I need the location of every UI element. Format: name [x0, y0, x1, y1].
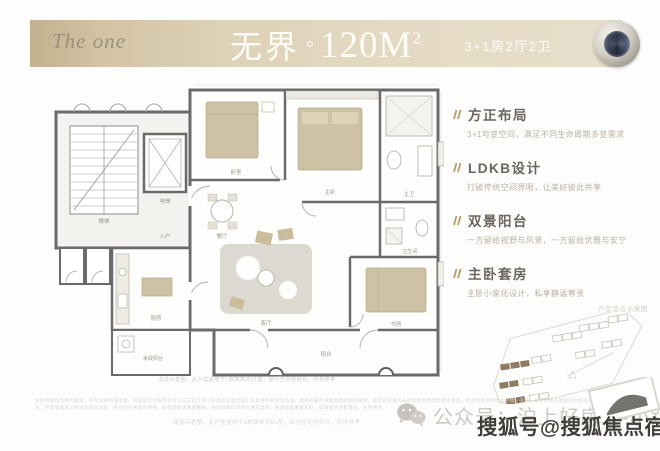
plan-note: 改造示意图，此户型适用于1栋西单元01室，部分空间经转化，仅供参考	[50, 376, 444, 383]
feature-title: LDKB设计	[468, 157, 542, 177]
room-label-laundry: 家政阳台	[143, 355, 163, 362]
title-cn: 无界	[230, 29, 300, 65]
room-label-bedroom: 卧室	[230, 168, 242, 176]
entry-door-gap	[189, 186, 192, 206]
title-area-number: 120M	[320, 25, 412, 66]
header-band: The one 无界120M2 3+1房2厅2卫	[30, 20, 622, 67]
feature-desc: 一方留给视野与风景，一方留给优雅与安宁	[467, 235, 654, 246]
room-label-kitchen: 厨房	[150, 314, 162, 322]
knot-seal-center	[604, 31, 630, 57]
feature-list: 方正布局 3+1可变空间，满足不同生命周期多变需求 LDKB设计 打破传统空间界…	[452, 104, 654, 299]
floorplan-drawing: 楼梯 电梯 入户 厨房 家政阳台	[50, 82, 444, 380]
room-laundry-balcony: 家政阳台	[112, 330, 190, 375]
feature-title: 主卧套房	[468, 263, 528, 283]
flyer-page: The one 无界120M2 3+1房2厅2卫 楼梯 电梯 入户	[0, 0, 660, 451]
feature-title: 方正布局	[468, 104, 528, 124]
feature-item: 方正布局 3+1可变空间，满足不同生命周期多变需求	[452, 104, 654, 140]
room-label-balcony: 阳台	[320, 350, 332, 358]
quote-marker-icon	[452, 162, 462, 173]
feature-desc: 主卧小家化设计，私享静谧尊贵	[467, 288, 654, 299]
room-label-study: 书房	[390, 320, 402, 328]
room-label-living: 客厅	[260, 319, 272, 327]
feature-head: 双景阳台	[452, 210, 654, 230]
room-label-master: 主卧	[324, 188, 336, 196]
room-kitchen: 厨房	[112, 248, 190, 330]
feature-head: 方正布局	[452, 104, 654, 124]
room-label-stairs: 楼梯	[98, 217, 110, 225]
room-label-entry: 入户	[159, 232, 170, 240]
quote-marker-icon	[452, 109, 462, 120]
feature-item: LDKB设计 打破传统空间界限，让美好彼此共享	[452, 157, 654, 193]
unit-spec: 3+1房2厅2卫	[464, 36, 552, 55]
quote-marker-icon	[452, 215, 462, 226]
footer-note: 改造示意图，此户型适用于1栋西单元01室，部分空间经转化，仅供参考	[173, 418, 360, 426]
feature-item: 双景阳台 一方留给视野与风景，一方留给优雅与安宁	[452, 210, 654, 246]
feature-head: 主卧套房	[452, 263, 654, 283]
feature-item: 主卧套房 主卧小家化设计，私享静谧尊贵	[452, 263, 654, 299]
knot-seal-icon	[594, 21, 640, 67]
wechat-icon	[396, 402, 426, 429]
room-label-dining: 餐厅	[216, 232, 228, 240]
room-label-elevator: 电梯	[159, 197, 171, 205]
feature-desc: 3+1可变空间，满足不同生命周期多变需求	[467, 129, 654, 140]
feature-head: LDKB设计	[452, 157, 654, 177]
kitchen-door-gap	[189, 282, 192, 300]
feature-desc: 打破传统空间界限，让美好彼此共享	[467, 182, 654, 193]
feature-title: 双景阳台	[468, 210, 528, 230]
room-label-bath: 卫生间	[402, 248, 417, 255]
room-label-master-bath: 主卫	[403, 190, 415, 198]
title-area: 120M2	[320, 25, 422, 66]
title-area-sup: 2	[412, 28, 422, 47]
title-dot-icon	[307, 41, 313, 47]
quote-marker-icon	[452, 268, 462, 279]
watermark-text: 搜狐号@搜狐焦点宿州站	[477, 410, 660, 440]
